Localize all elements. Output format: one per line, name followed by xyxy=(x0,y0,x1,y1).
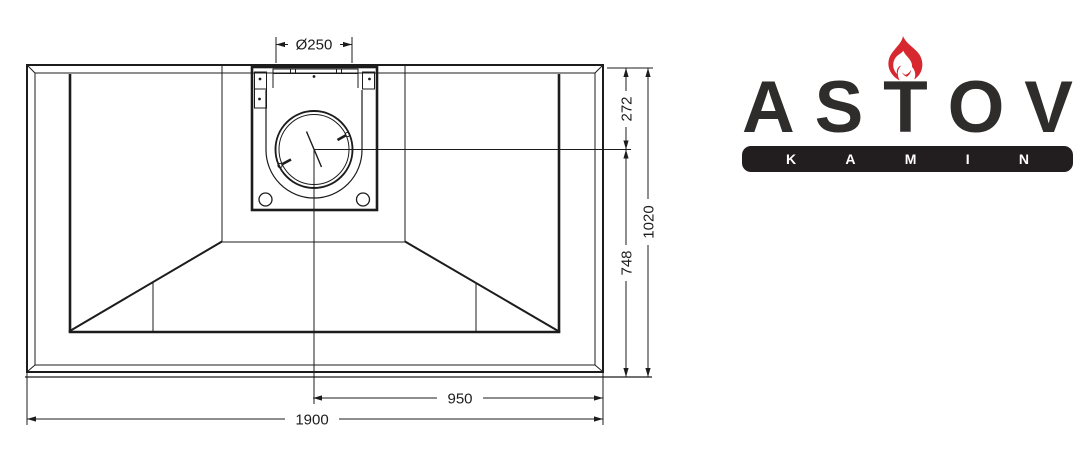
brand-letter: S xyxy=(815,76,864,140)
dim-label-total-width: 1900 xyxy=(295,412,328,429)
brand-letter: O xyxy=(948,76,1005,140)
top-center-hole xyxy=(313,75,316,78)
dim-label-half-width: 950 xyxy=(447,391,472,408)
dimension-total-height: 1020 xyxy=(640,68,658,377)
sub-letter: M xyxy=(905,146,917,172)
dimension-total-width: 1900 xyxy=(27,411,603,429)
dim-label-lower-height: 748 xyxy=(619,250,636,275)
sub-letter: N xyxy=(1019,146,1029,172)
dim-label-flue-diameter: Ø250 xyxy=(296,37,333,54)
sub-letter: I xyxy=(966,146,970,172)
brand-letter: T xyxy=(883,76,928,140)
sub-letter: A xyxy=(845,146,855,172)
brand-letter: A xyxy=(742,76,795,140)
sub-letter: K xyxy=(786,146,796,172)
corner-hole-left xyxy=(259,193,272,206)
center-lines xyxy=(314,150,631,405)
brand-letter: V xyxy=(1024,76,1073,140)
dimension-flue-diameter: Ø250 xyxy=(276,36,352,54)
corner-hole-right xyxy=(357,193,370,206)
astov-kamin-logo: A S T O V K A M I N xyxy=(742,0,1073,185)
dimension-lower-height: 748 xyxy=(618,150,636,378)
dim-label-total-height: 1020 xyxy=(641,205,658,238)
dimension-top-offset: 272 xyxy=(618,68,636,150)
brand-wordmark: A S T O V xyxy=(742,76,1073,142)
dimension-half-width: 950 xyxy=(313,390,603,408)
technical-drawing: Ø250 272 748 1020 950 xyxy=(0,0,700,452)
kamin-bar: K A M I N xyxy=(742,146,1073,172)
dim-label-top-offset: 272 xyxy=(619,96,636,121)
